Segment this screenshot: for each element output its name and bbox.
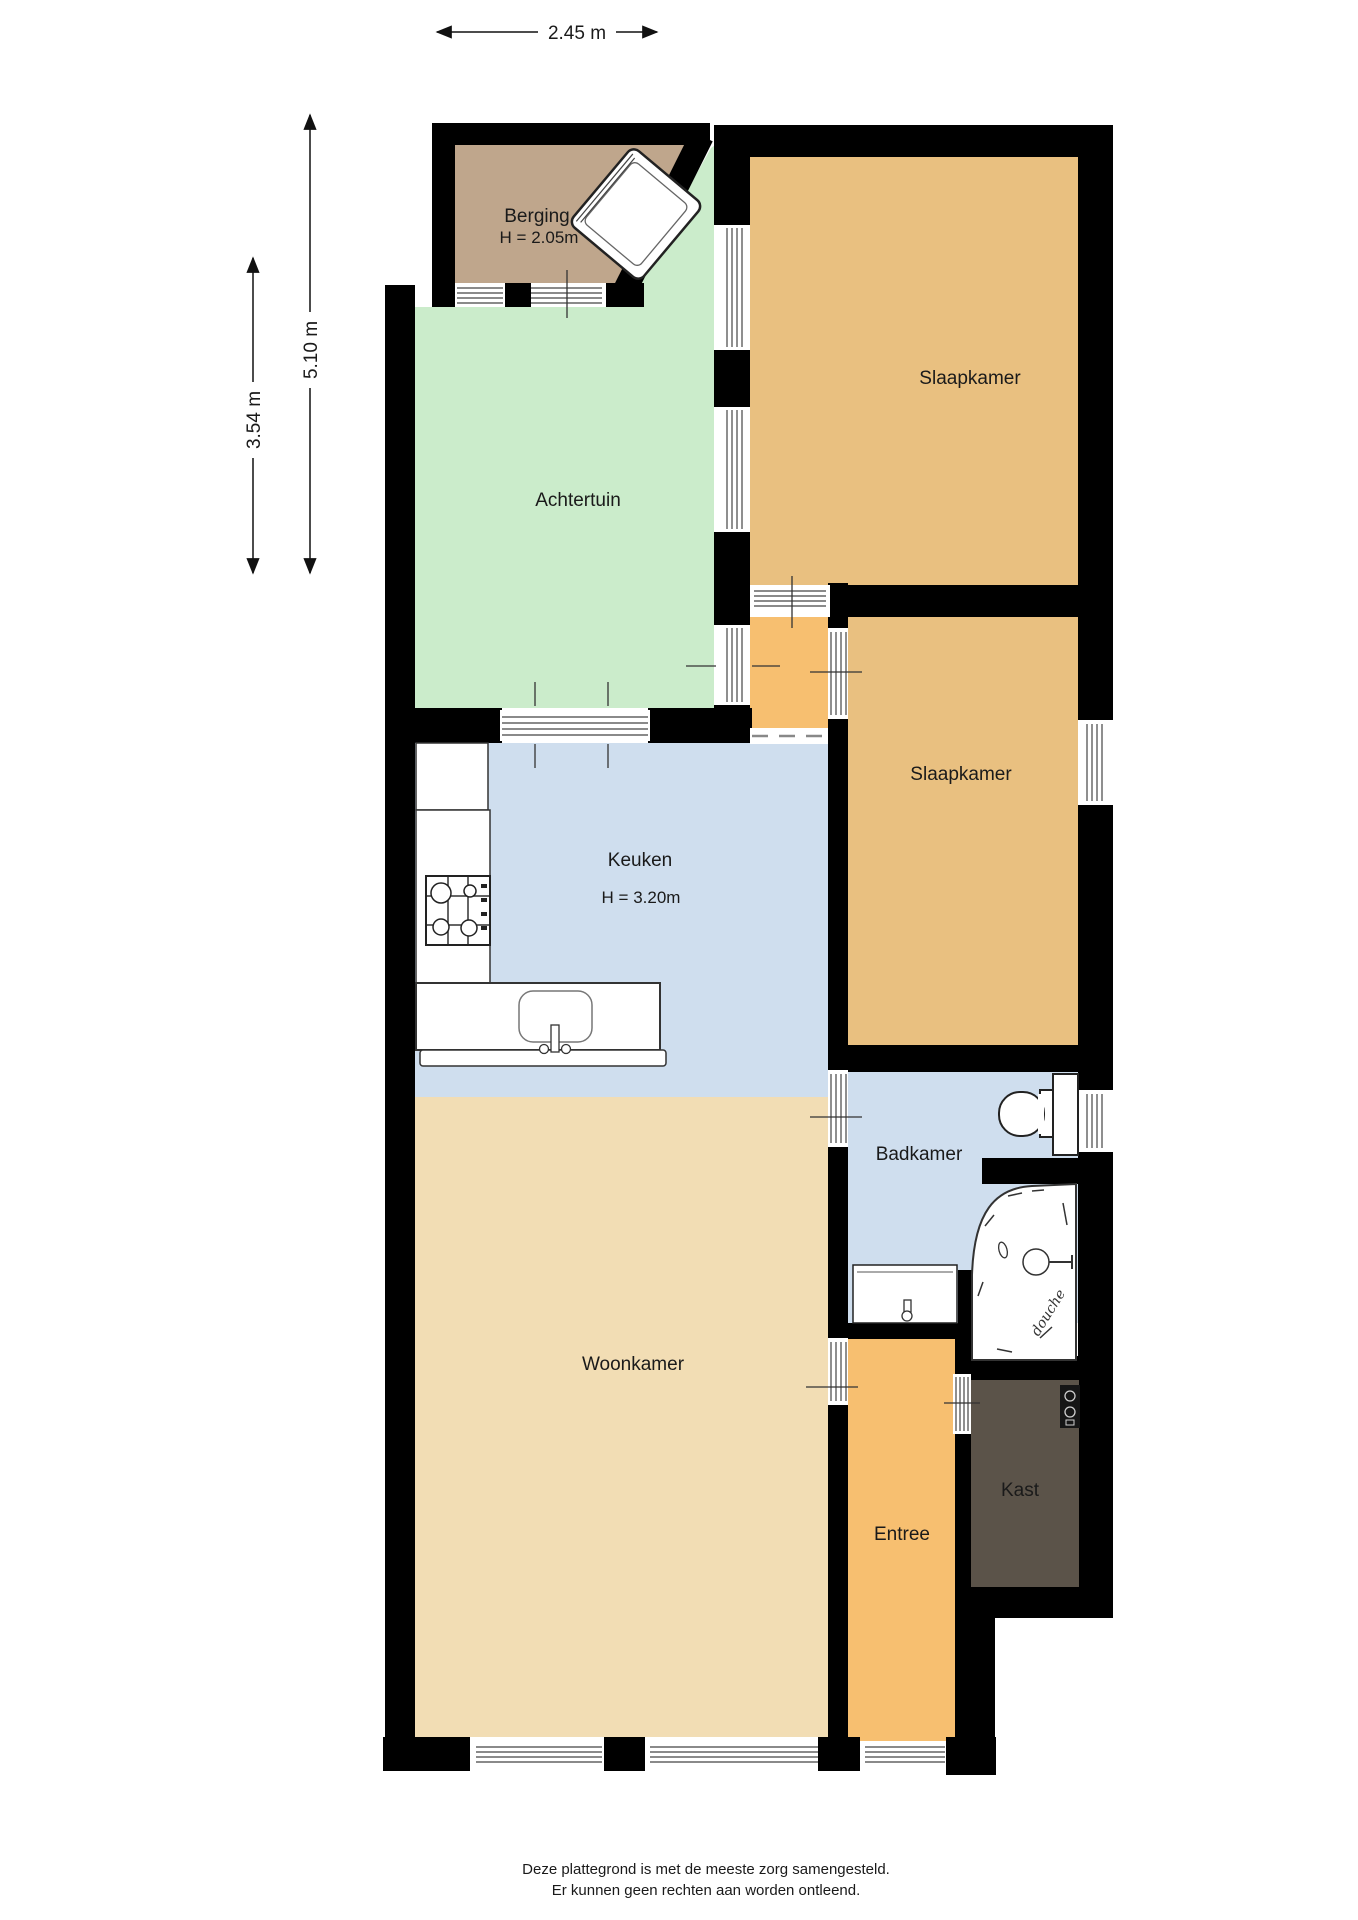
- wall-toilet: [982, 1158, 1082, 1184]
- wall-left: [385, 285, 415, 1771]
- stove-icon: [426, 876, 490, 945]
- wall-post-berging-diag-foot: [606, 283, 644, 307]
- label-berging: Berging: [504, 206, 570, 227]
- room-slaapkamer2-floor: [848, 617, 1078, 1045]
- dimension-left-inner-height: 3.54 m: [239, 258, 267, 573]
- wall-slaapkamer2-bottom: [828, 1045, 1113, 1072]
- label-keuken: Keuken: [608, 850, 672, 871]
- label-woonkamer: Woonkamer: [582, 1354, 685, 1375]
- room-slaapkamer1-floor: [750, 157, 1078, 585]
- keuken-top-window: [500, 710, 650, 741]
- wall-keuken-top-right: [648, 708, 752, 743]
- garden-column-window-2: [714, 407, 750, 532]
- woonkamer-window-band: [470, 1741, 828, 1768]
- wall-slaapkamer1-bottom: [830, 585, 1113, 617]
- label-entree: Entree: [874, 1524, 930, 1545]
- badkamer-right-window: [1078, 1090, 1113, 1152]
- disclaimer-line-1: Deze plattegrond is met de meeste zorg s…: [522, 1861, 890, 1878]
- garden-column-window-3: [714, 625, 750, 705]
- label-badkamer: Badkamer: [876, 1144, 963, 1165]
- dimension-left-inner-label: 3.54 m: [244, 391, 265, 449]
- dimension-top-width-label: 2.45 m: [548, 23, 606, 44]
- wall-post-bottom-entree-left: [818, 1737, 860, 1771]
- disclaimer: Deze plattegrond is met de meeste zorg s…: [522, 1861, 890, 1899]
- wall-mid-keuken-slaapkamer2: [828, 717, 848, 1047]
- label-achtertuin: Achtertuin: [535, 490, 621, 511]
- wall-post-bottom-entree-right: [946, 1737, 996, 1775]
- room-woonkamer-floor: [415, 1097, 828, 1737]
- disclaimer-line-2: Er kunnen geen rechten aan worden ontlee…: [552, 1882, 861, 1899]
- wall-keuken-top-left: [385, 708, 502, 743]
- wall-entree-right-lower: [955, 1432, 971, 1590]
- label-slaapkamer1: Slaapkamer: [919, 368, 1021, 389]
- dimension-top-width: 2.45 m: [437, 18, 657, 46]
- kast-door: [953, 1374, 971, 1434]
- wall-entree-right-upper: [955, 1337, 971, 1378]
- washbasin-icon: [853, 1265, 957, 1323]
- wall-berging-left: [432, 145, 455, 307]
- wall-post-bottom-mid: [604, 1737, 645, 1771]
- wall-berging-top: [432, 123, 710, 145]
- label-berging-height: H = 2.05m: [500, 228, 579, 247]
- badkamer-door: [828, 1070, 848, 1147]
- wall-woonkamer-entree: [828, 1403, 848, 1760]
- wall-mid-upper-block: [828, 583, 848, 630]
- wall-mid-keuken-badkamer: [828, 1145, 848, 1340]
- boiler-unit-icon: [1060, 1385, 1080, 1428]
- slaapkamer2-right-window: [1078, 720, 1113, 805]
- dimension-left-outer-label: 5.10 m: [301, 321, 322, 379]
- label-slaapkamer2: Slaapkamer: [910, 764, 1012, 785]
- slaapkamer1-door: [750, 585, 830, 617]
- floorplan-canvas: douche Berging H = 2.05m Sl: [0, 0, 1358, 1920]
- wall-washbasin: [838, 1323, 965, 1339]
- slaapkamer2-door: [828, 628, 848, 719]
- entree-woonkamer-door: [828, 1338, 848, 1405]
- wall-bottom-left-block: [383, 1737, 470, 1771]
- label-keuken-height: H = 3.20m: [602, 888, 681, 907]
- floorplan-page: douche Berging H = 2.05m Sl: [0, 0, 1358, 1920]
- wall-post-berging-band: [505, 283, 531, 307]
- wall-kast-bottom: [955, 1587, 1113, 1618]
- hal-keuken-open-passage: [750, 728, 828, 744]
- room-hal-floor: [750, 617, 828, 729]
- entree-front-door: [860, 1741, 950, 1768]
- garden-column-window-1: [714, 225, 750, 350]
- label-kast: Kast: [1001, 1480, 1040, 1501]
- shower-icon: douche: [972, 1184, 1076, 1360]
- wall-kast-right: [1079, 1373, 1113, 1618]
- dimension-left-outer-height: 5.10 m: [296, 115, 324, 573]
- wall-main-top: [714, 125, 1113, 157]
